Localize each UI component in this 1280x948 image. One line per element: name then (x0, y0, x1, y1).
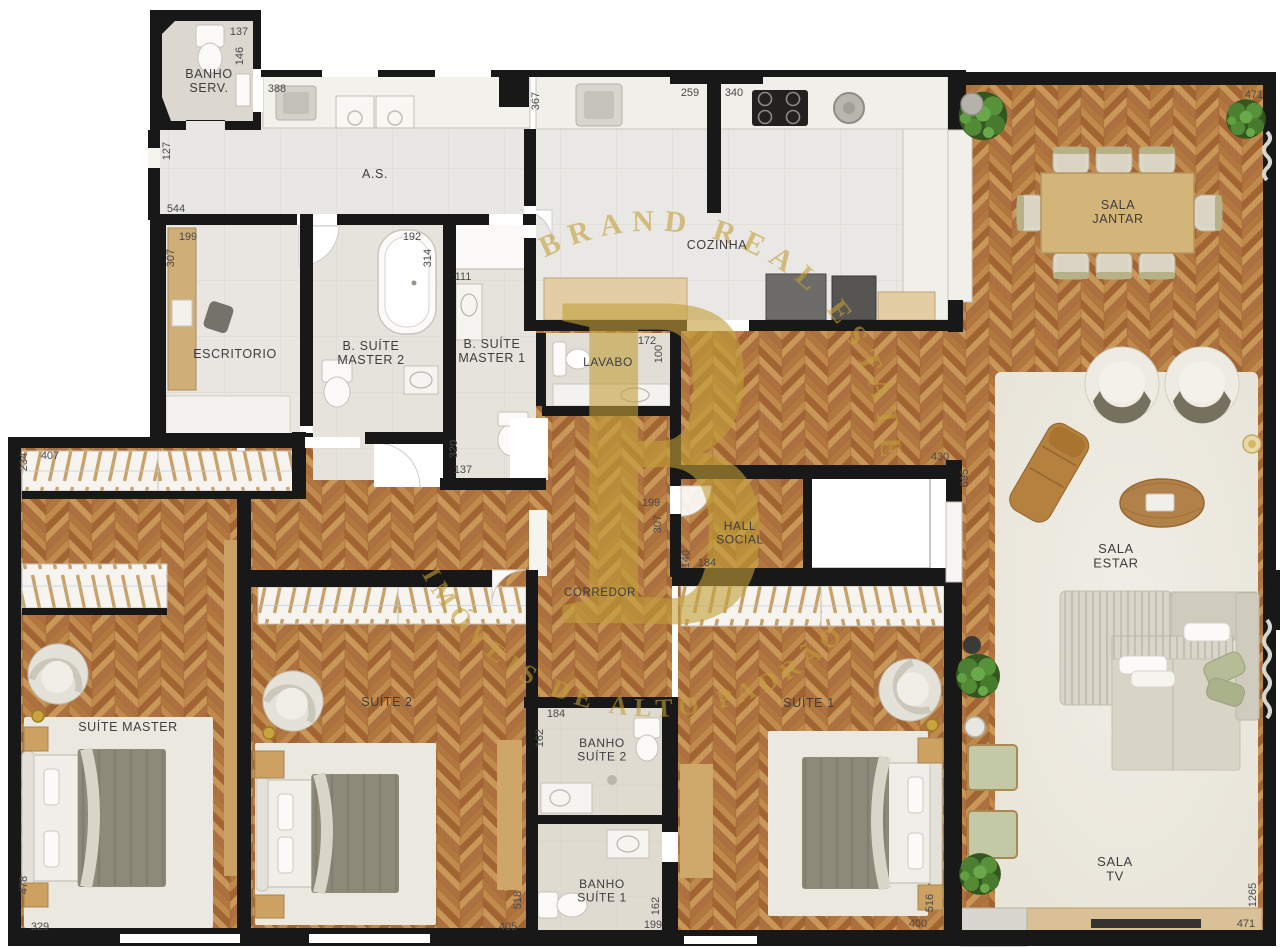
svg-text:162: 162 (650, 897, 662, 915)
svg-text:ESTAR: ESTAR (1093, 556, 1138, 571)
svg-text:388: 388 (268, 83, 286, 95)
svg-text:518: 518 (512, 891, 524, 909)
svg-text:B: B (557, 189, 769, 730)
svg-text:234: 234 (18, 453, 30, 471)
svg-text:184: 184 (547, 708, 565, 720)
svg-text:SUÍTE 2: SUÍTE 2 (361, 694, 412, 709)
svg-text:1265: 1265 (1247, 883, 1259, 907)
svg-text:162: 162 (534, 729, 546, 747)
svg-text:199: 199 (642, 497, 660, 509)
svg-text:146: 146 (234, 47, 246, 65)
svg-text:192: 192 (403, 231, 421, 243)
svg-text:471: 471 (1245, 89, 1263, 101)
svg-text:BANHO: BANHO (579, 736, 625, 750)
svg-text:LAVABO: LAVABO (583, 355, 633, 369)
svg-text:TV: TV (1106, 869, 1124, 884)
svg-text:A.S.: A.S. (362, 167, 388, 181)
svg-text:516: 516 (924, 894, 936, 912)
svg-text:314: 314 (422, 249, 434, 267)
svg-text:HALL: HALL (724, 519, 756, 533)
svg-text:695: 695 (959, 469, 971, 487)
svg-text:BANHO: BANHO (185, 67, 232, 81)
svg-text:SOCIAL: SOCIAL (716, 532, 764, 546)
svg-text:199: 199 (179, 231, 197, 243)
svg-text:JANTAR: JANTAR (1092, 212, 1143, 226)
svg-text:137: 137 (230, 26, 248, 38)
svg-text:CORREDOR: CORREDOR (564, 587, 636, 599)
svg-text:400: 400 (909, 918, 927, 930)
svg-text:SALA: SALA (1101, 198, 1135, 212)
svg-text:BANHO: BANHO (579, 877, 625, 891)
svg-text:367: 367 (530, 92, 542, 110)
svg-text:MASTER 2: MASTER 2 (337, 353, 404, 367)
svg-text:184: 184 (698, 557, 716, 569)
svg-text:471: 471 (1237, 918, 1255, 930)
svg-text:111: 111 (455, 271, 472, 283)
svg-text:405: 405 (499, 921, 517, 933)
svg-text:SUÍTE 1: SUÍTE 1 (783, 695, 834, 710)
svg-text:SALA: SALA (1098, 541, 1134, 556)
svg-text:329: 329 (31, 921, 49, 933)
svg-text:127: 127 (161, 142, 173, 160)
svg-text:COZINHA: COZINHA (687, 238, 748, 252)
svg-text:SUÍTE 2: SUÍTE 2 (577, 748, 627, 763)
svg-text:307: 307 (165, 249, 177, 267)
svg-text:SUÍTE 1: SUÍTE 1 (577, 889, 627, 904)
svg-text:SERV.: SERV. (189, 81, 228, 95)
svg-text:SUÍTE MASTER: SUÍTE MASTER (78, 719, 178, 734)
svg-text:100: 100 (653, 345, 665, 363)
svg-text:SALA: SALA (1097, 854, 1133, 869)
svg-text:430: 430 (931, 451, 949, 463)
svg-text:199: 199 (644, 919, 662, 931)
svg-text:478: 478 (18, 876, 30, 894)
svg-text:407: 407 (41, 450, 59, 462)
svg-text:544: 544 (167, 203, 185, 215)
svg-text:137: 137 (454, 464, 472, 476)
svg-text:MASTER 1: MASTER 1 (458, 351, 525, 365)
svg-text:B. SUÍTE: B. SUÍTE (464, 336, 521, 351)
svg-text:320: 320 (448, 440, 460, 458)
svg-text:259: 259 (681, 87, 699, 99)
svg-text:340: 340 (725, 87, 743, 99)
svg-text:140: 140 (680, 550, 692, 568)
svg-text:B. SUÍTE: B. SUÍTE (343, 338, 400, 353)
svg-text:ESCRITORIO: ESCRITORIO (193, 347, 277, 361)
svg-text:307: 307 (652, 515, 664, 533)
